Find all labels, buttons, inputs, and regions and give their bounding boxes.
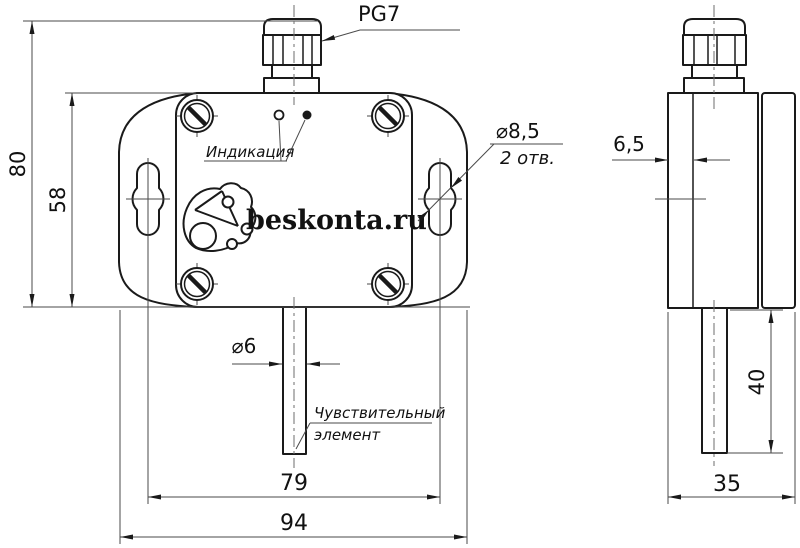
dim-flange-depth: 6,5 xyxy=(613,132,645,156)
sensor-technical-drawing: beskonta.ru xyxy=(0,0,800,548)
cable-gland-front xyxy=(263,19,321,93)
label-sensing-element-1: Чувствительный xyxy=(314,404,446,422)
label-mount-hole-diameter: ⌀8,5 xyxy=(496,119,540,143)
led-indicator-open xyxy=(275,111,284,120)
logo-text: beskonta.ru xyxy=(246,205,427,236)
led-indicator-filled xyxy=(303,111,312,120)
dim-overall-height: 80 xyxy=(6,151,30,178)
dim-hole-spacing: 79 xyxy=(280,471,308,496)
dim-probe-length: 40 xyxy=(745,369,769,396)
enclosure-body-side xyxy=(668,93,758,308)
label-cable-gland: PG7 xyxy=(358,2,400,26)
enclosure-lid-side xyxy=(762,93,795,308)
dim-overall-depth: 35 xyxy=(713,472,741,497)
label-sensing-element-2: элемент xyxy=(314,426,381,444)
dim-overall-width: 94 xyxy=(280,511,308,536)
label-mount-hole-count: 2 отв. xyxy=(500,148,555,169)
drawing-canvas: beskonta.ru xyxy=(0,0,800,548)
dim-body-height: 58 xyxy=(46,187,70,214)
label-indication: Индикация xyxy=(206,143,294,161)
dim-probe-diameter: ⌀6 xyxy=(232,334,257,358)
